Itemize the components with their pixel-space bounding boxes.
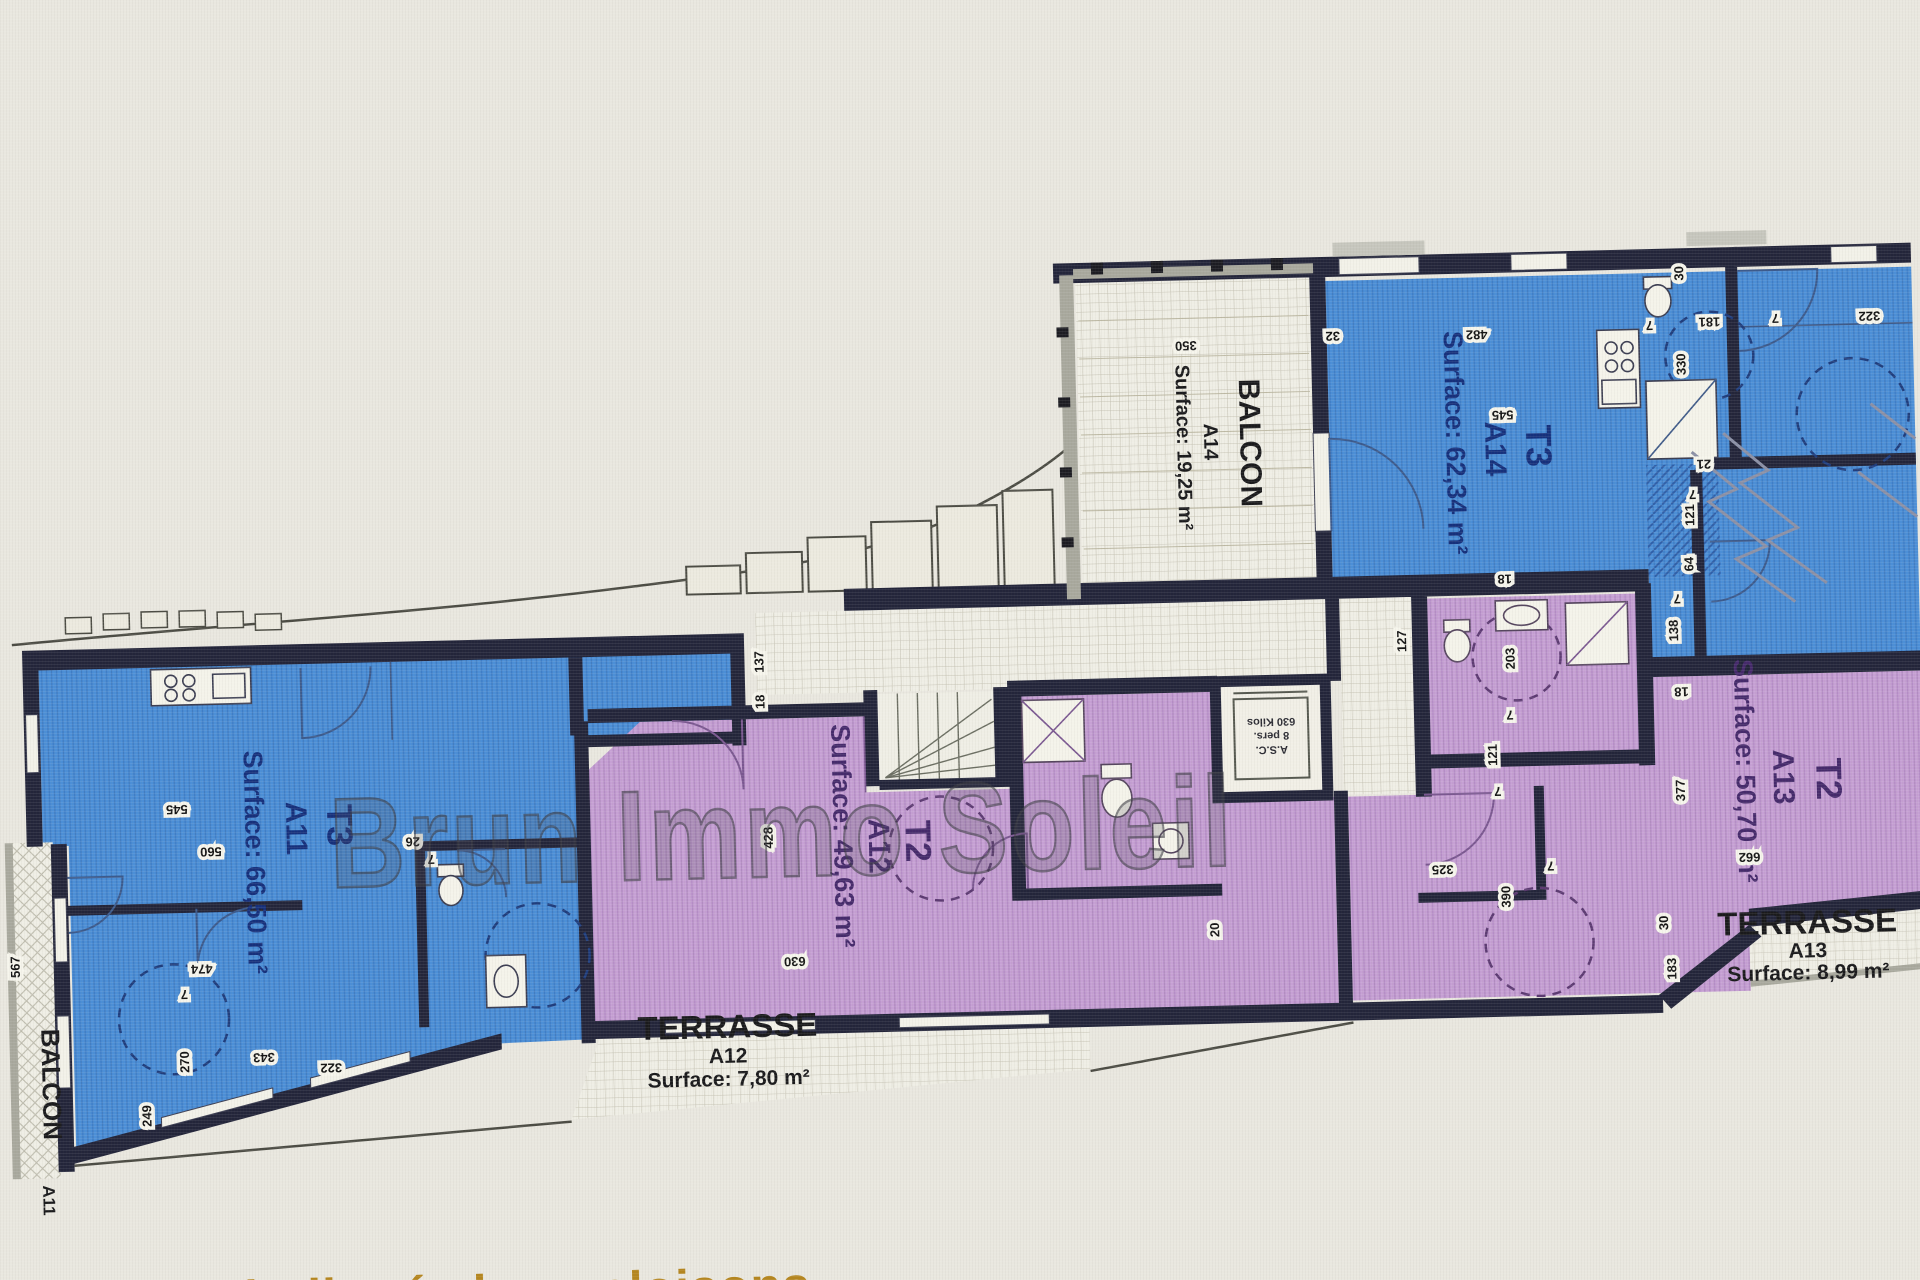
dimension-label: 181 (1698, 314, 1720, 330)
a14-type: T3 (1518, 424, 1560, 467)
dimension-label: 545 (166, 802, 188, 818)
floor-plan-page: A.S.C. 8 pers. 630 Kilos (0, 0, 1920, 1280)
dimension-label: 18 (1674, 684, 1689, 699)
dimension-label: 32 (1325, 329, 1340, 344)
dimension-label: 30 (1656, 915, 1671, 930)
dimension-label: 121 (1485, 744, 1501, 766)
dimension-label: 121 (1682, 504, 1698, 526)
dimension-label: 322 (1858, 308, 1880, 324)
dimension-label: 474 (190, 961, 213, 977)
dimension-label: 560 (200, 844, 222, 860)
dimension-label: 127 (1394, 630, 1410, 652)
dimension-label: 203 (1502, 648, 1518, 670)
terrasse-a12-id: A12 (709, 1044, 748, 1068)
a13-type: T2 (1808, 757, 1850, 800)
dimension-label: 18 (1497, 571, 1512, 586)
balcon-a11-title: BALCON (35, 1028, 68, 1140)
corridor-vertical-area (1339, 597, 1416, 795)
terrasse-a12-surface: Surface: 7,80 m² (647, 1066, 810, 1093)
balcony-a11-label: BALCON A11 (35, 1028, 70, 1215)
terrasse-a13-surface: Surface: 8,99 m² (1727, 959, 1890, 986)
dimension-label: 482 (1466, 327, 1488, 343)
dimension-label: 183 (1664, 958, 1680, 980)
dimension-label: 7 (1673, 591, 1681, 606)
dimension-label: 137 (751, 651, 767, 673)
balcon-a14-id: A14 (1199, 423, 1222, 461)
dimension-label: 325 (1432, 862, 1454, 878)
dimension-label: 330 (1673, 353, 1689, 375)
dimension-label: 567 (7, 956, 23, 978)
terrasse-a13-id: A13 (1788, 939, 1827, 963)
balcon-a14-title: BALCON (1232, 378, 1268, 507)
a13-surface: Surface: 50,70 m² (1728, 659, 1763, 883)
dimension-label: 7 (181, 987, 189, 1002)
a13-id: A13 (1766, 749, 1800, 805)
dimension-label: 7 (1772, 311, 1780, 326)
a11-surface: Surface: 66,50 m² (237, 750, 272, 974)
dimension-label: 30 (1671, 266, 1686, 281)
dimension-label: 350 (1175, 338, 1197, 354)
terrasse-a12-title: TERRASSE (637, 1006, 818, 1047)
a14-id: A14 (1478, 421, 1512, 477)
dimension-label: 390 (1498, 886, 1514, 908)
dimension-label: 377 (1673, 779, 1689, 801)
dimension-label: 7 (1547, 859, 1555, 874)
kitchen-a11 (150, 667, 251, 705)
dimension-label: 249 (139, 1105, 155, 1127)
dimension-label: 18 (752, 694, 767, 709)
dimension-label: 7 (1506, 707, 1514, 722)
dimension-label: 630 (784, 954, 806, 970)
balcon-a11-id: A11 (39, 1185, 59, 1216)
dimension-label: 322 (320, 1060, 342, 1076)
floor-plan: A.S.C. 8 pers. 630 Kilos (0, 227, 1920, 1280)
bottom-note: Superficie indiquée hors cloisons (0, 1257, 812, 1280)
a11-id: A11 (279, 801, 313, 855)
dimension-label: 138 (1666, 620, 1682, 642)
dimension-label: 21 (1697, 457, 1712, 472)
terrasse-a13-title: TERRASSE (1717, 901, 1898, 942)
dimension-label: 343 (253, 1050, 275, 1066)
elevator-label-line1: A.S.C. (1255, 743, 1288, 756)
a14-surface: Surface: 62,34 m² (1438, 331, 1473, 555)
dimension-label: 20 (1207, 922, 1222, 937)
dimension-label: 7 (1494, 784, 1502, 799)
balcon-a14-surface: Surface: 19,25 m² (1170, 364, 1196, 530)
dimension-label: 662 (1739, 850, 1761, 866)
elevator-label-line3: 630 Kilos (1247, 715, 1296, 728)
dimension-label: 64 (1681, 556, 1696, 572)
dimension-label: 7 (1689, 487, 1697, 502)
balcony-a14-area (1075, 275, 1316, 583)
exterior-steps (684, 490, 1054, 595)
floor-plan-svg: A.S.C. 8 pers. 630 Kilos (0, 0, 1920, 1280)
dimension-label: 545 (1492, 407, 1514, 423)
dimension-label: 270 (177, 1051, 193, 1073)
dimension-label: 7 (1646, 318, 1654, 333)
elevator-label-line2: 8 pers. (1254, 729, 1290, 742)
watermark-text: Brun Immo Soleil (328, 750, 1236, 915)
